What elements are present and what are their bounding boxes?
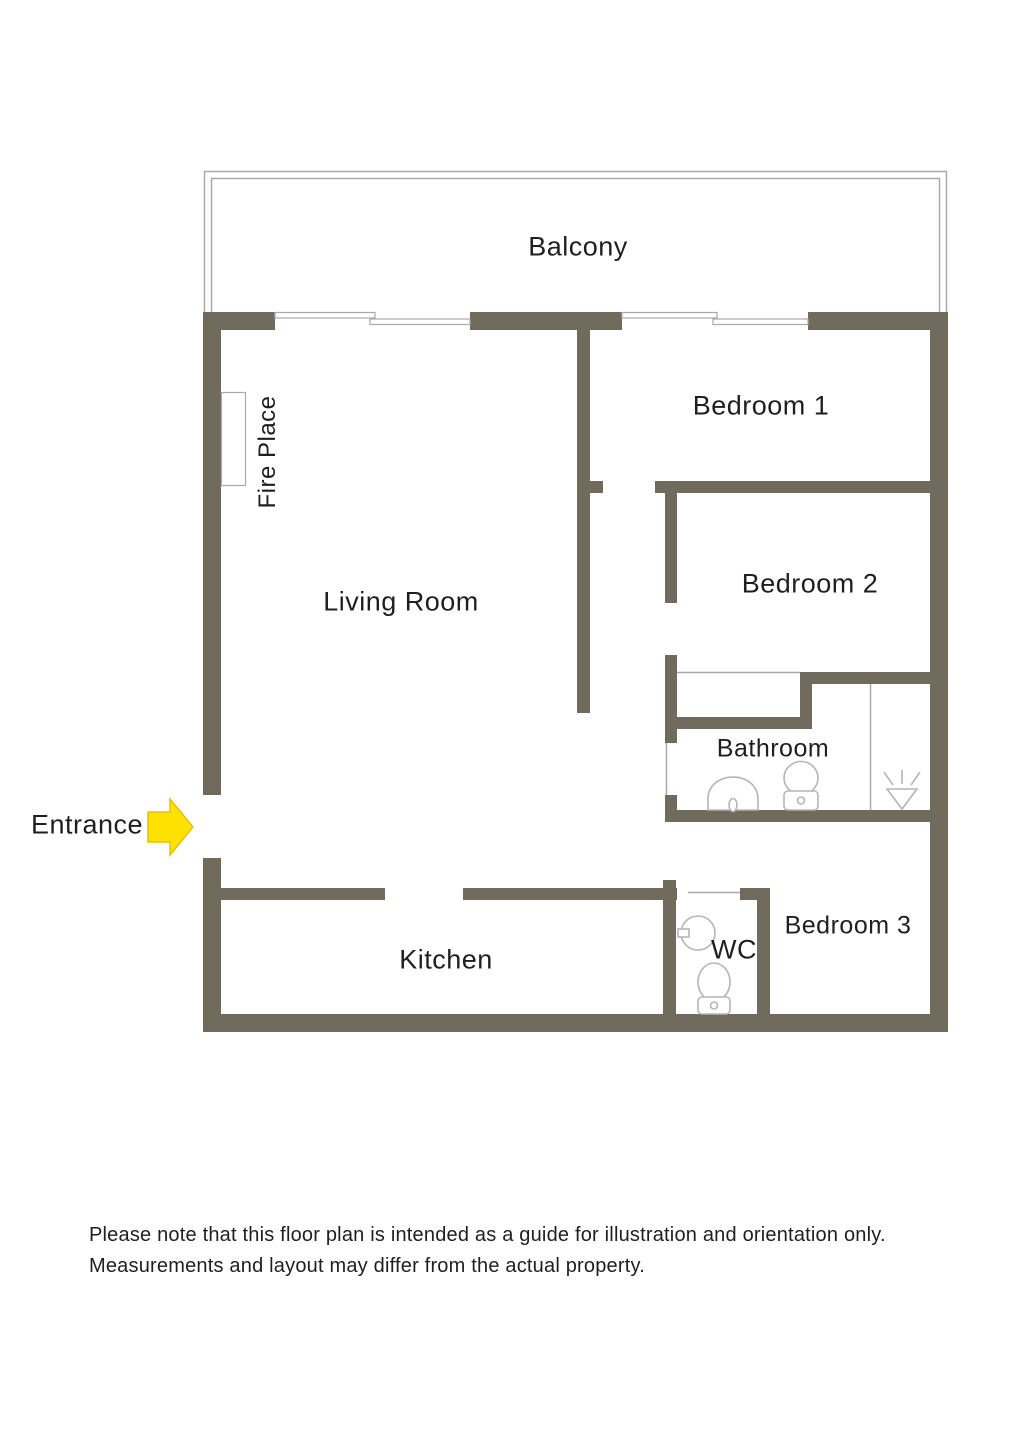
bedroom2-label: Bedroom 2 [742, 569, 879, 600]
fireplace-icon [222, 393, 246, 486]
wc-sink-icon [678, 916, 715, 950]
bathroom-toilet-icon [784, 762, 818, 811]
bathroom-label: Bathroom [717, 735, 829, 764]
bedroom1-label: Bedroom 1 [693, 391, 830, 422]
bathroom-sink-icon [708, 777, 758, 812]
wc-toilet-icon [698, 963, 730, 1014]
entrance-label: Entrance [31, 810, 143, 841]
bedroom3-label: Bedroom 3 [785, 912, 912, 941]
disclaimer-line-2: Measurements and layout may differ from … [89, 1251, 886, 1282]
wc-label: WC [711, 935, 757, 966]
disclaimer: Please note that this floor plan is inte… [89, 1220, 886, 1282]
balcony-label: Balcony [528, 232, 628, 263]
kitchen-label: Kitchen [399, 945, 493, 976]
disclaimer-line-1: Please note that this floor plan is inte… [89, 1220, 886, 1251]
fireplace-label: Fire Place [254, 395, 282, 508]
shower-icon [884, 770, 920, 809]
floor-plan: Balcony Bedroom 1 Bedroom 2 Bathroom Bed… [0, 0, 1024, 1448]
living-room-label: Living Room [323, 587, 479, 618]
entrance-arrow-icon [148, 799, 193, 855]
window-icon [275, 313, 470, 325]
window-icon [622, 313, 808, 325]
